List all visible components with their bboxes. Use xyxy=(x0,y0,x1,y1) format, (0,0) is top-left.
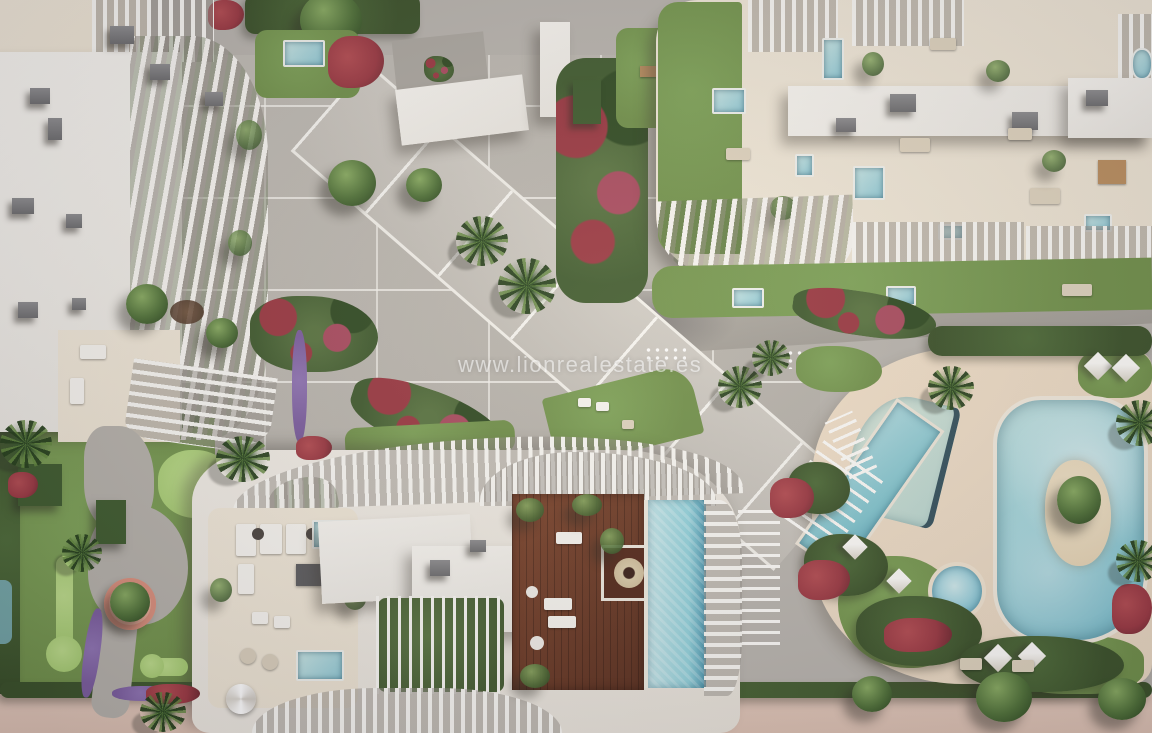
palm-tree xyxy=(62,534,102,572)
tree xyxy=(206,318,238,348)
roof-vent xyxy=(66,214,82,228)
tree xyxy=(976,672,1032,722)
tree xyxy=(1098,678,1146,720)
terrace-lounger xyxy=(70,378,84,404)
sun-lounger xyxy=(1012,660,1034,672)
putting-green-circle xyxy=(140,654,164,678)
balcony-plants xyxy=(170,300,204,324)
purple-flower-strip xyxy=(292,330,307,442)
bottom-building-right-pergola xyxy=(704,500,742,696)
deck-round-daybed xyxy=(614,558,644,588)
tree xyxy=(852,676,892,712)
palm-tree xyxy=(456,216,508,266)
palm-tree xyxy=(498,258,556,314)
round-pouf xyxy=(252,528,264,540)
palm-tree xyxy=(718,366,762,408)
roof-vent xyxy=(72,298,86,310)
spiral-stair xyxy=(226,684,256,714)
terrace-lounge-set xyxy=(930,38,956,50)
putting-green-circle xyxy=(46,636,82,672)
roof-vent xyxy=(1086,90,1108,106)
roof-vent xyxy=(18,302,38,318)
terrace-lounge-set xyxy=(1008,128,1032,140)
round-chair xyxy=(240,648,256,664)
balcony-plants xyxy=(228,230,252,256)
roof-vent xyxy=(470,540,486,552)
terrace-sofa xyxy=(80,345,106,359)
deck-pouf xyxy=(526,586,538,598)
rooftop-pool xyxy=(644,500,706,688)
tree xyxy=(328,160,376,206)
roof-vent xyxy=(430,560,450,576)
aerial-site-render: www.lionrealestate.es xyxy=(0,0,1152,733)
tree xyxy=(406,168,442,202)
plunge-pool xyxy=(732,288,764,308)
roof-vent xyxy=(30,88,50,104)
roof-vent xyxy=(48,118,62,140)
round-chair xyxy=(262,654,278,670)
deck-console xyxy=(556,532,582,544)
sun-lounger xyxy=(960,658,982,670)
deck-planter xyxy=(520,664,550,688)
courtyard-planter xyxy=(424,56,454,82)
pool-pergola xyxy=(738,510,780,648)
terrace-lounge-set xyxy=(1030,188,1060,204)
water-glimpse xyxy=(0,580,12,644)
pool-lawn xyxy=(796,346,882,392)
palm-tree xyxy=(928,366,974,410)
plunge-pool xyxy=(795,154,814,177)
deck-lounger xyxy=(548,616,576,628)
plunge-pool xyxy=(822,38,844,80)
roof-vent xyxy=(890,94,916,112)
terrace-plants xyxy=(1042,150,1066,172)
lounge-chair xyxy=(252,612,268,624)
plunge-pool xyxy=(853,166,885,200)
garden-cabana xyxy=(573,80,601,124)
deck-planter xyxy=(600,528,624,554)
day-bed xyxy=(260,524,282,554)
sun-mat xyxy=(596,402,609,411)
garden-cabana xyxy=(96,500,126,544)
roof-block xyxy=(1068,78,1152,138)
deck-pouf xyxy=(530,636,544,650)
lounge-chair xyxy=(274,616,290,628)
roof-vent xyxy=(836,118,856,132)
terrace-plants xyxy=(210,578,232,602)
planter-tree xyxy=(110,582,150,622)
day-bed xyxy=(286,524,306,554)
dining-table-dark xyxy=(296,564,322,586)
kitchen-cabinet xyxy=(238,564,254,594)
roof-vent xyxy=(110,26,134,44)
balcony-railing xyxy=(376,596,506,694)
roof-vent xyxy=(150,64,170,80)
pool-hedge xyxy=(928,326,1152,356)
garden-table xyxy=(622,420,634,429)
sun-mat xyxy=(578,398,591,407)
terrace-plants xyxy=(862,52,884,76)
island-shrub xyxy=(1057,476,1101,524)
roof-jacuzzi xyxy=(1131,48,1152,80)
roof-dining-table xyxy=(1098,160,1126,184)
terrace-sofa xyxy=(726,148,750,160)
tree xyxy=(126,284,168,324)
deck-lounger xyxy=(544,598,572,610)
terrace-plants xyxy=(986,60,1010,82)
deck-planter xyxy=(516,498,544,522)
palm-tree xyxy=(752,340,790,376)
roof-vent xyxy=(205,92,223,106)
roof-vent xyxy=(12,198,34,214)
watermark-text: www.lionrealestate.es xyxy=(458,352,702,378)
balcony-plants xyxy=(236,120,262,150)
palm-tree xyxy=(216,436,270,482)
plunge-pool xyxy=(296,650,344,681)
palm-tree xyxy=(140,692,186,732)
palm-tree xyxy=(1116,540,1152,582)
plunge-pool xyxy=(283,40,325,67)
plunge-pool xyxy=(712,88,746,114)
deck-planter xyxy=(572,494,602,516)
palm-tree xyxy=(0,420,52,468)
pool-island xyxy=(1045,460,1111,566)
lawn-loungers xyxy=(1062,284,1092,296)
terrace-lounge-set xyxy=(900,138,930,152)
